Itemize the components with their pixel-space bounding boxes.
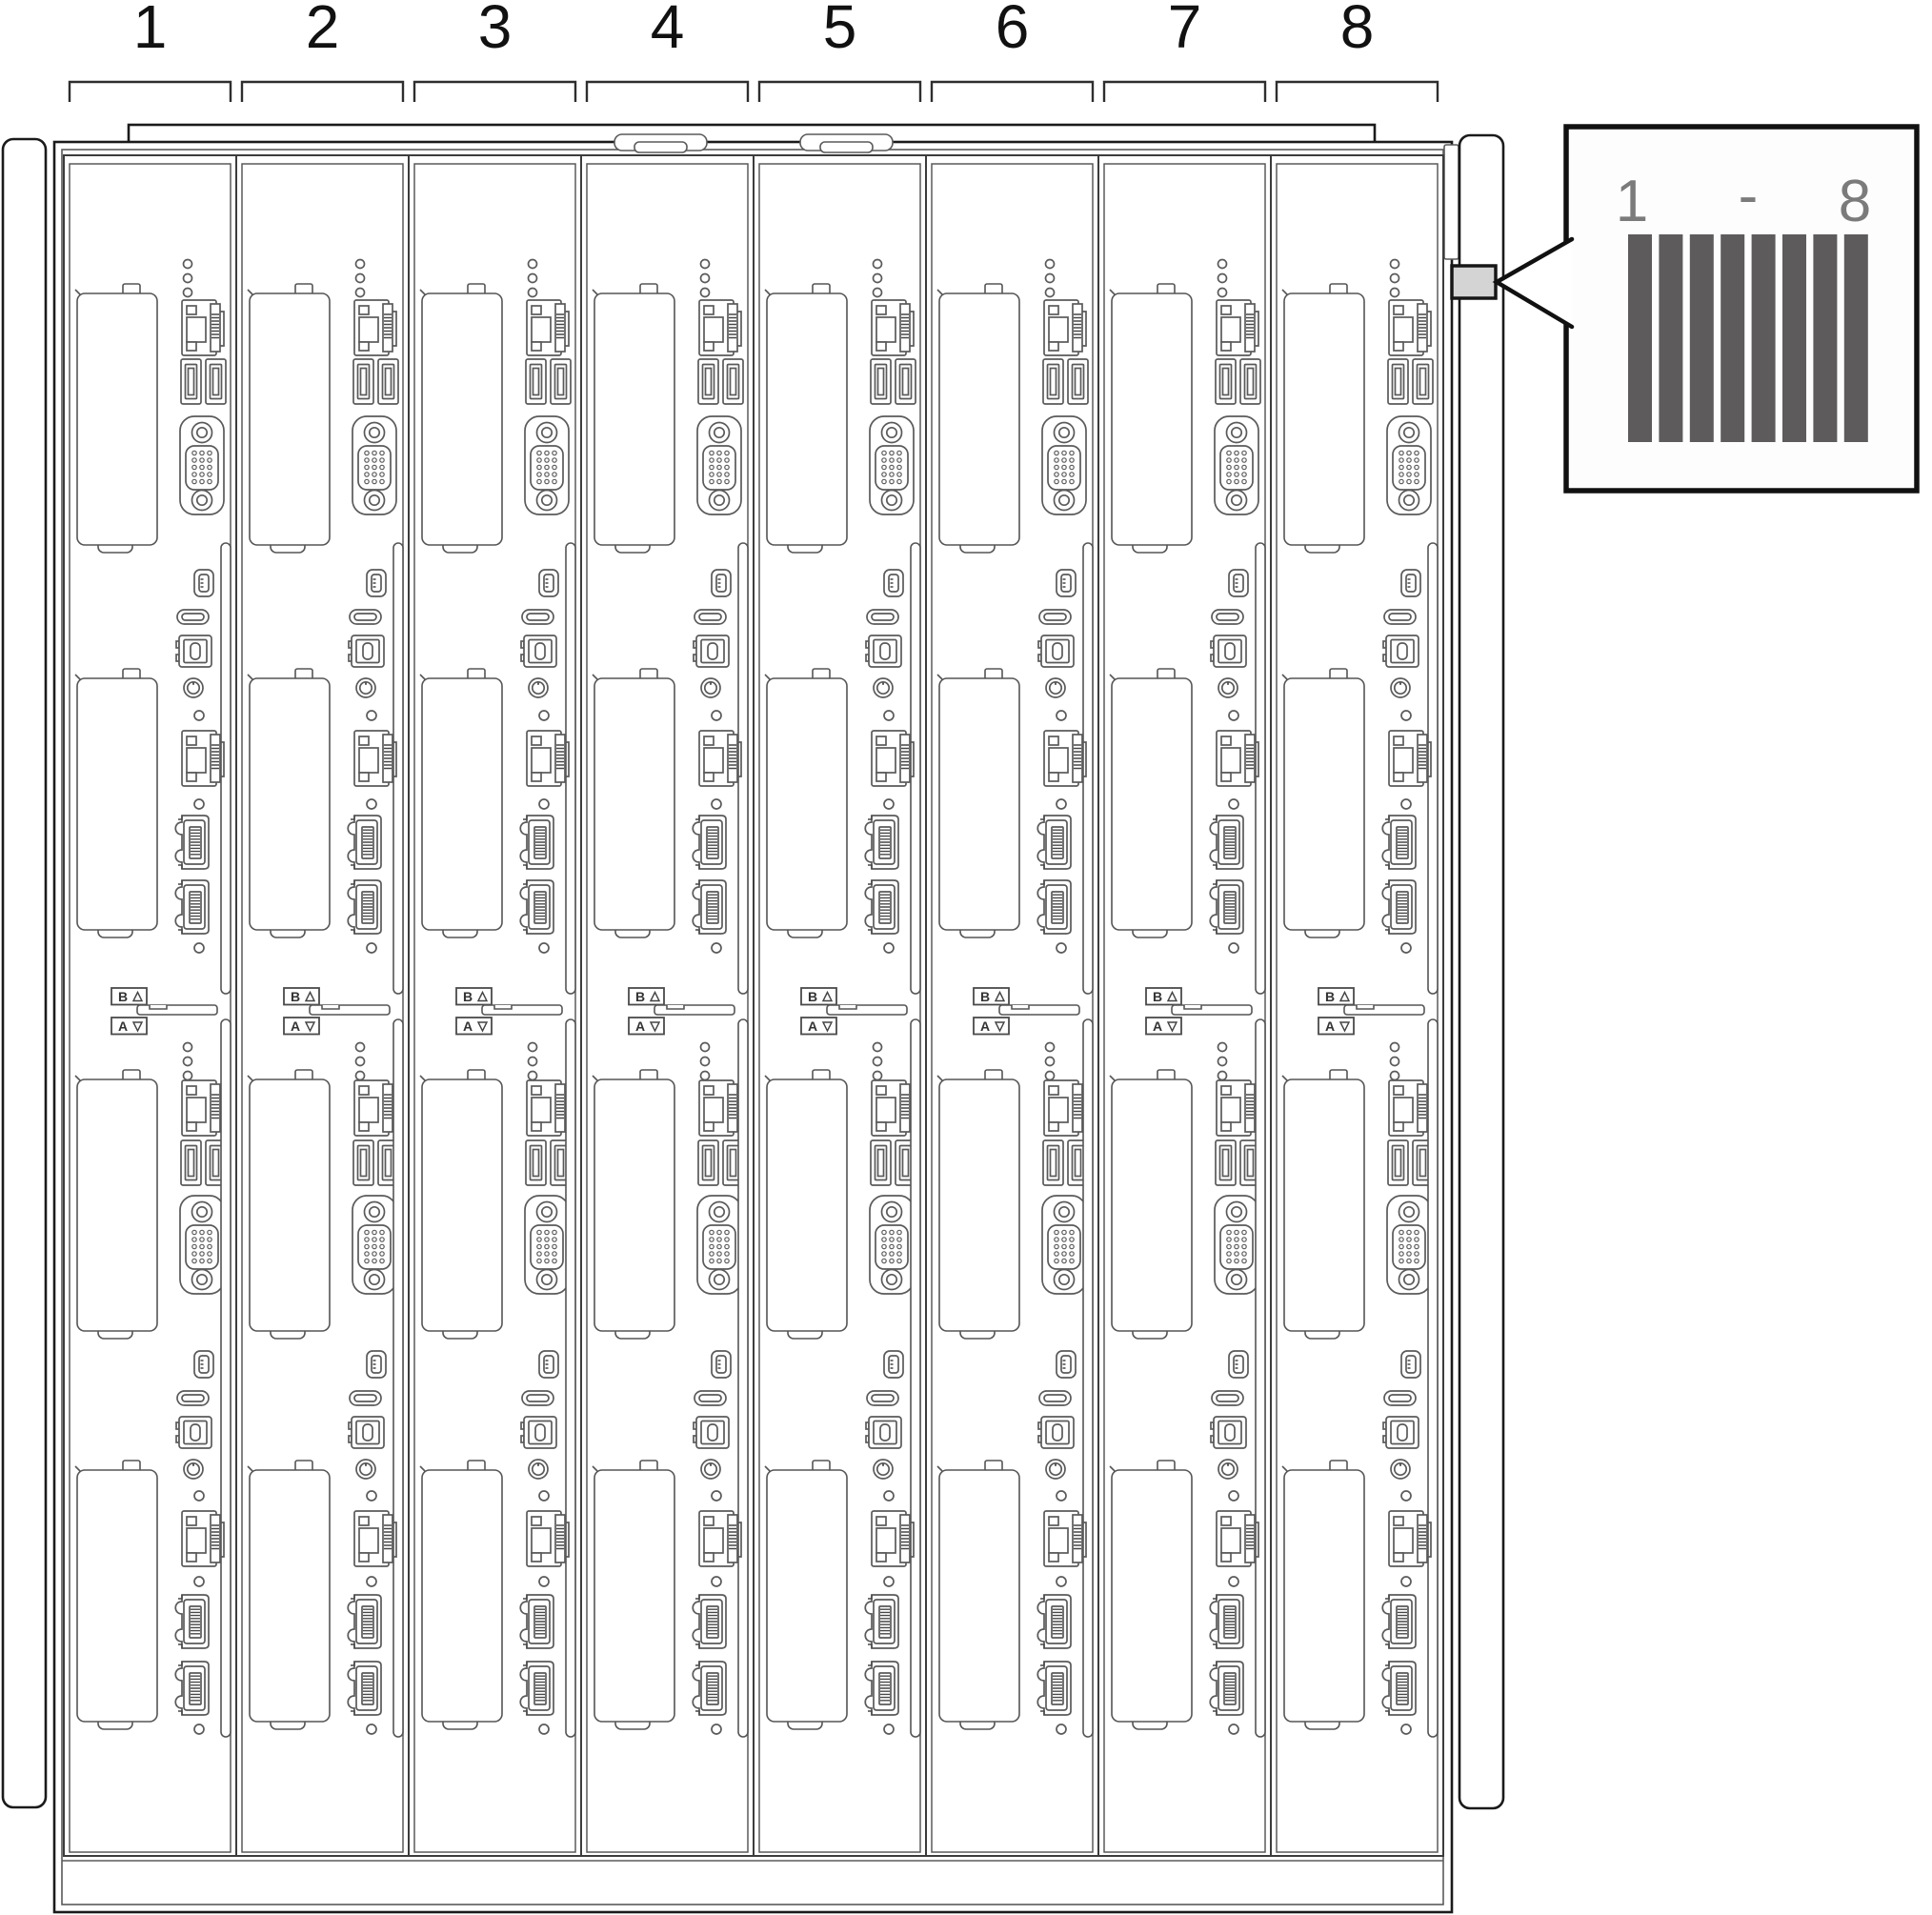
management-ethernet-port-icon (872, 1080, 914, 1136)
usb-c-port-icon (694, 1391, 726, 1405)
power-button-icon (1391, 1460, 1410, 1479)
blank-panel (420, 669, 502, 937)
management-ethernet-port-icon (1044, 1080, 1086, 1136)
usb-port-icon (698, 359, 718, 404)
tray-rail (1083, 543, 1093, 994)
led-icon (1401, 711, 1411, 720)
svg-text:A: A (1325, 1018, 1335, 1034)
usb-port-icon (698, 1140, 718, 1185)
usb-b-port-icon (1383, 635, 1419, 667)
led-icon (539, 1724, 549, 1734)
status-leds-icon (184, 260, 192, 297)
callout-range-start: 1 (1616, 169, 1648, 234)
blank-panel (937, 1070, 1019, 1339)
status-leds-icon (874, 260, 882, 297)
svg-text:B: B (980, 989, 990, 1004)
usb-c-port-icon (177, 610, 209, 624)
vga-port-icon (180, 1196, 224, 1294)
node-a-label: A (111, 1018, 147, 1035)
led-icon (1057, 799, 1066, 809)
mini-usb-port-icon (712, 570, 731, 596)
blank-panel (75, 669, 157, 937)
ethernet-port-icon (699, 1511, 741, 1566)
ethernet-port-icon (872, 731, 914, 786)
blank-panel (1282, 1461, 1364, 1729)
status-leds-icon (701, 1043, 710, 1080)
blank-panel (420, 284, 502, 553)
tray-rail (1428, 543, 1438, 994)
usb-c-port-icon (694, 610, 726, 624)
svg-text:B: B (808, 989, 817, 1004)
power-button-icon (529, 1460, 548, 1479)
ethernet-port-icon (1217, 1511, 1258, 1566)
management-ethernet-port-icon (182, 1080, 224, 1136)
tray-rail (566, 543, 575, 994)
tray-numbering-label (1452, 266, 1496, 298)
led-icon (884, 1577, 894, 1586)
svg-text:A: A (635, 1018, 645, 1034)
usb-port-icon (526, 1140, 546, 1185)
blank-panel (75, 1070, 157, 1339)
mini-usb-port-icon (884, 570, 903, 596)
node-a-label: A (1146, 1018, 1181, 1035)
usb-b-port-icon (521, 635, 556, 667)
power-button-icon (184, 1460, 203, 1479)
tray-rail (221, 1019, 231, 1737)
vga-port-icon (697, 416, 741, 514)
right-side-strip (1444, 145, 1459, 259)
led-icon (194, 1724, 204, 1734)
vga-port-icon (525, 1196, 569, 1294)
status-leds-icon (1391, 1043, 1399, 1080)
power-button-icon (1391, 678, 1410, 697)
power-button-icon (356, 678, 375, 697)
label-bar (1813, 234, 1837, 442)
slot-bracket-icon (932, 82, 1093, 102)
tray-rail (738, 543, 748, 994)
led-icon (1229, 1491, 1238, 1501)
slot-bracket-icon (587, 82, 748, 102)
blank-panel (937, 1461, 1019, 1729)
led-icon (367, 711, 376, 720)
slot-number: 7 (1168, 0, 1202, 61)
slot-number: 5 (823, 0, 857, 61)
power-button-icon (701, 1460, 720, 1479)
usb-c-port-icon (350, 610, 381, 624)
management-ethernet-port-icon (1389, 1080, 1431, 1136)
management-ethernet-port-icon (527, 1080, 569, 1136)
led-icon (712, 711, 721, 720)
led-icon (884, 711, 894, 720)
svg-text:B: B (463, 989, 473, 1004)
status-leds-icon (184, 1043, 192, 1080)
power-button-icon (184, 678, 203, 697)
usb-c-port-icon (522, 610, 553, 624)
led-icon (884, 1724, 894, 1734)
tray-slot-2: 2 (236, 0, 409, 1856)
vga-port-icon (1215, 1196, 1258, 1294)
power-button-icon (874, 678, 893, 697)
blank-panel (765, 1070, 847, 1339)
power-button-icon (1218, 1460, 1238, 1479)
led-icon (1229, 711, 1238, 720)
svg-text:B: B (118, 989, 128, 1004)
tray-rail (1256, 543, 1265, 994)
label-bar (1628, 234, 1652, 442)
slot-number: 2 (306, 0, 340, 61)
usb-b-port-icon (866, 1417, 901, 1448)
usb-b-port-icon (866, 635, 901, 667)
tray-slots: 1 (64, 0, 1443, 1856)
led-icon (194, 711, 204, 720)
blank-panel (248, 1461, 330, 1729)
status-leds-icon (529, 260, 537, 297)
status-leds-icon (1391, 260, 1399, 297)
usb-port-icon (1068, 359, 1088, 404)
usb-port-icon (353, 359, 373, 404)
ethernet-port-icon (527, 731, 569, 786)
vga-port-icon (870, 416, 914, 514)
ethernet-port-icon (527, 1511, 569, 1566)
power-button-icon (356, 1460, 375, 1479)
mini-usb-port-icon (1229, 1351, 1248, 1378)
status-leds-icon (874, 1043, 882, 1080)
led-icon (194, 943, 204, 953)
slot-number: 3 (478, 0, 513, 61)
tray-slot-5: 5 (754, 0, 926, 1856)
power-button-icon (1218, 678, 1238, 697)
ethernet-port-icon (1217, 731, 1258, 786)
blank-panel (937, 284, 1019, 553)
mini-usb-port-icon (539, 570, 558, 596)
blank-panel (75, 284, 157, 553)
mini-usb-port-icon (1229, 570, 1248, 596)
vga-port-icon (525, 416, 569, 514)
usb-port-icon (1043, 359, 1063, 404)
tray-release-latch (999, 1005, 1079, 1015)
usb-b-port-icon (349, 1417, 384, 1448)
led-icon (194, 1491, 204, 1501)
vga-port-icon (1387, 416, 1431, 514)
status-leds-icon (356, 1043, 365, 1080)
tray-release-latch (1344, 1005, 1424, 1015)
usb-c-port-icon (1212, 1391, 1243, 1405)
ethernet-port-icon (182, 731, 224, 786)
usb-port-icon (871, 359, 891, 404)
led-icon (1057, 1491, 1066, 1501)
vga-port-icon (1387, 1196, 1431, 1294)
led-icon (539, 799, 549, 809)
usb-port-icon (1240, 359, 1260, 404)
led-icon (1401, 1577, 1411, 1586)
usb-port-icon (1043, 1140, 1063, 1185)
slot-number: 6 (996, 0, 1030, 61)
power-button-icon (701, 678, 720, 697)
usb-b-port-icon (694, 1417, 729, 1448)
tray-release-latch (654, 1005, 735, 1015)
led-icon (712, 943, 721, 953)
chassis-latch (614, 134, 707, 152)
tray-rail (1428, 1019, 1438, 1737)
slot-number: 4 (651, 0, 685, 61)
management-ethernet-port-icon (182, 300, 224, 355)
tray-rail (911, 543, 920, 994)
blank-panel (75, 1461, 157, 1729)
management-ethernet-port-icon (354, 1080, 396, 1136)
tray-slot-7: 7 (1098, 0, 1271, 1856)
power-button-icon (1046, 678, 1065, 697)
node-b-label: B (456, 988, 492, 1005)
led-icon (712, 1577, 721, 1586)
slot-number: 1 (133, 0, 168, 61)
led-icon (1057, 711, 1066, 720)
callout: 1 - 8 (1497, 127, 1917, 491)
usb-b-port-icon (521, 1417, 556, 1448)
led-icon (712, 799, 721, 809)
blank-panel (765, 669, 847, 937)
ethernet-port-icon (1044, 731, 1086, 786)
svg-text:A: A (291, 1018, 300, 1034)
svg-text:B: B (635, 989, 645, 1004)
node-a-label: A (284, 1018, 319, 1035)
usb-b-port-icon (694, 635, 729, 667)
vga-port-icon (352, 1196, 396, 1294)
svg-text:B: B (1325, 989, 1335, 1004)
mini-usb-port-icon (194, 570, 213, 596)
svg-text:A: A (980, 1018, 990, 1034)
label-bar (1659, 234, 1682, 442)
led-icon (539, 1577, 549, 1586)
led-icon (194, 1577, 204, 1586)
svg-text:A: A (463, 1018, 473, 1034)
vga-port-icon (180, 416, 224, 514)
slot-bracket-icon (759, 82, 920, 102)
tray-slot-3: 3 (409, 0, 581, 1856)
left-mounting-ear (3, 139, 46, 1807)
usb-c-port-icon (1212, 610, 1243, 624)
node-a-label: A (1318, 1018, 1354, 1035)
led-icon (884, 799, 894, 809)
node-b-label: B (1146, 988, 1181, 1005)
tray-rail (566, 1019, 575, 1737)
usb-b-port-icon (1211, 635, 1246, 667)
mini-usb-port-icon (1057, 1351, 1076, 1378)
label-bar (1844, 234, 1868, 442)
slot-bracket-icon (414, 82, 575, 102)
mini-usb-port-icon (539, 1351, 558, 1378)
mini-usb-port-icon (712, 1351, 731, 1378)
blank-panel (593, 284, 674, 553)
mini-usb-port-icon (1057, 570, 1076, 596)
usb-c-port-icon (1039, 1391, 1071, 1405)
led-icon (1229, 799, 1238, 809)
vga-port-icon (1042, 1196, 1086, 1294)
led-icon (539, 1491, 549, 1501)
callout-range-separator: - (1739, 163, 1759, 229)
power-button-icon (529, 678, 548, 697)
mini-usb-port-icon (884, 1351, 903, 1378)
led-icon (194, 799, 204, 809)
usb-c-port-icon (522, 1391, 553, 1405)
usb-c-port-icon (867, 610, 898, 624)
node-a-label: A (629, 1018, 664, 1035)
led-icon (1057, 1724, 1066, 1734)
led-icon (367, 1577, 376, 1586)
mini-usb-port-icon (367, 570, 386, 596)
usb-port-icon (1216, 1140, 1236, 1185)
usb-b-port-icon (176, 635, 211, 667)
led-icon (539, 943, 549, 953)
management-ethernet-port-icon (1217, 1080, 1258, 1136)
slot-bracket-icon (70, 82, 231, 102)
tray-rail (393, 1019, 403, 1737)
mini-usb-port-icon (1401, 570, 1420, 596)
led-icon (367, 943, 376, 953)
led-icon (1401, 1491, 1411, 1501)
label-bar (1721, 234, 1744, 442)
management-ethernet-port-icon (699, 300, 741, 355)
vga-port-icon (352, 416, 396, 514)
status-leds-icon (701, 260, 710, 297)
blank-panel (248, 1070, 330, 1339)
ethernet-port-icon (699, 731, 741, 786)
usb-b-port-icon (349, 635, 384, 667)
node-a-label: A (801, 1018, 836, 1035)
slot-number: 8 (1340, 0, 1375, 61)
mini-usb-port-icon (367, 1351, 386, 1378)
tray-slot-8: 8 (1271, 0, 1443, 1856)
slot-bracket-icon (1104, 82, 1265, 102)
led-icon (1229, 1577, 1238, 1586)
ethernet-port-icon (182, 1511, 224, 1566)
tray-release-latch (137, 1005, 217, 1015)
callout-pointer (1497, 239, 1572, 327)
enclosure-front-view-diagram: 1 (0, 0, 1932, 1915)
blank-panel (1282, 284, 1364, 553)
tray-rail (1083, 1019, 1093, 1737)
usb-b-port-icon (1038, 1417, 1074, 1448)
management-ethernet-port-icon (699, 1080, 741, 1136)
tray-slot-1: 1 (64, 0, 236, 1856)
tray-release-latch (1172, 1005, 1252, 1015)
ethernet-port-icon (354, 1511, 396, 1566)
led-icon (712, 1724, 721, 1734)
mini-usb-port-icon (194, 1351, 213, 1378)
label-bar (1782, 234, 1806, 442)
usb-b-port-icon (176, 1417, 211, 1448)
slot-bracket-icon (242, 82, 403, 102)
status-leds-icon (1046, 1043, 1055, 1080)
tray-rail (738, 1019, 748, 1737)
blank-panel (593, 669, 674, 937)
svg-text:A: A (1153, 1018, 1162, 1034)
led-icon (539, 711, 549, 720)
label-bar (1752, 234, 1776, 442)
tray-release-latch (827, 1005, 907, 1015)
node-a-label: A (456, 1018, 492, 1035)
led-icon (1057, 1577, 1066, 1586)
blank-panel (1110, 1461, 1192, 1729)
blank-panel (1282, 1070, 1364, 1339)
usb-port-icon (526, 359, 546, 404)
usb-port-icon (551, 359, 571, 404)
blank-panel (937, 669, 1019, 937)
node-b-label: B (1318, 988, 1354, 1005)
node-b-label: B (111, 988, 147, 1005)
status-leds-icon (1218, 260, 1227, 297)
tray-release-latch (310, 1005, 390, 1015)
tray-release-latch (482, 1005, 562, 1015)
usb-port-icon (871, 1140, 891, 1185)
tray-rail (1256, 1019, 1265, 1737)
usb-b-port-icon (1383, 1417, 1419, 1448)
node-b-label: B (284, 988, 319, 1005)
status-leds-icon (1218, 1043, 1227, 1080)
svg-text:B: B (1153, 989, 1162, 1004)
blank-panel (420, 1070, 502, 1339)
usb-port-icon (181, 1140, 201, 1185)
vga-port-icon (1042, 416, 1086, 514)
blank-panel (765, 1461, 847, 1729)
led-icon (884, 943, 894, 953)
tray-rail (911, 1019, 920, 1737)
slot-bracket-icon (1277, 82, 1438, 102)
node-b-label: B (629, 988, 664, 1005)
usb-port-icon (378, 359, 398, 404)
led-icon (367, 799, 376, 809)
blank-panel (420, 1461, 502, 1729)
status-leds-icon (1046, 260, 1055, 297)
blank-panel (593, 1070, 674, 1339)
blank-panel (1110, 1070, 1192, 1339)
mini-usb-port-icon (1401, 1351, 1420, 1378)
tray-rail (393, 543, 403, 994)
led-icon (1401, 943, 1411, 953)
right-mounting-ear (1459, 135, 1503, 1808)
svg-text:B: B (291, 989, 300, 1004)
usb-port-icon (206, 359, 226, 404)
management-ethernet-port-icon (1044, 300, 1086, 355)
led-icon (1057, 943, 1066, 953)
node-b-label: B (801, 988, 836, 1005)
ethernet-port-icon (872, 1511, 914, 1566)
vga-port-icon (1215, 416, 1258, 514)
tray-slot-4: 4 (581, 0, 754, 1856)
blank-panel (1110, 284, 1192, 553)
blank-panel (248, 284, 330, 553)
blank-panel (248, 669, 330, 937)
ethernet-port-icon (1044, 1511, 1086, 1566)
callout-range-end: 8 (1839, 169, 1871, 234)
ethernet-port-icon (354, 731, 396, 786)
ethernet-port-icon (1389, 731, 1431, 786)
blank-panel (765, 284, 847, 553)
usb-port-icon (181, 359, 201, 404)
blank-panel (1282, 669, 1364, 937)
chassis-latch (800, 134, 893, 152)
usb-c-port-icon (177, 1391, 209, 1405)
ethernet-port-icon (1389, 1511, 1431, 1566)
usb-c-port-icon (867, 1391, 898, 1405)
usb-port-icon (723, 359, 743, 404)
power-button-icon (1046, 1460, 1065, 1479)
led-icon (367, 1724, 376, 1734)
usb-c-port-icon (350, 1391, 381, 1405)
usb-port-icon (896, 359, 916, 404)
usb-c-port-icon (1039, 610, 1071, 624)
vga-port-icon (697, 1196, 741, 1294)
blank-panel (1110, 669, 1192, 937)
